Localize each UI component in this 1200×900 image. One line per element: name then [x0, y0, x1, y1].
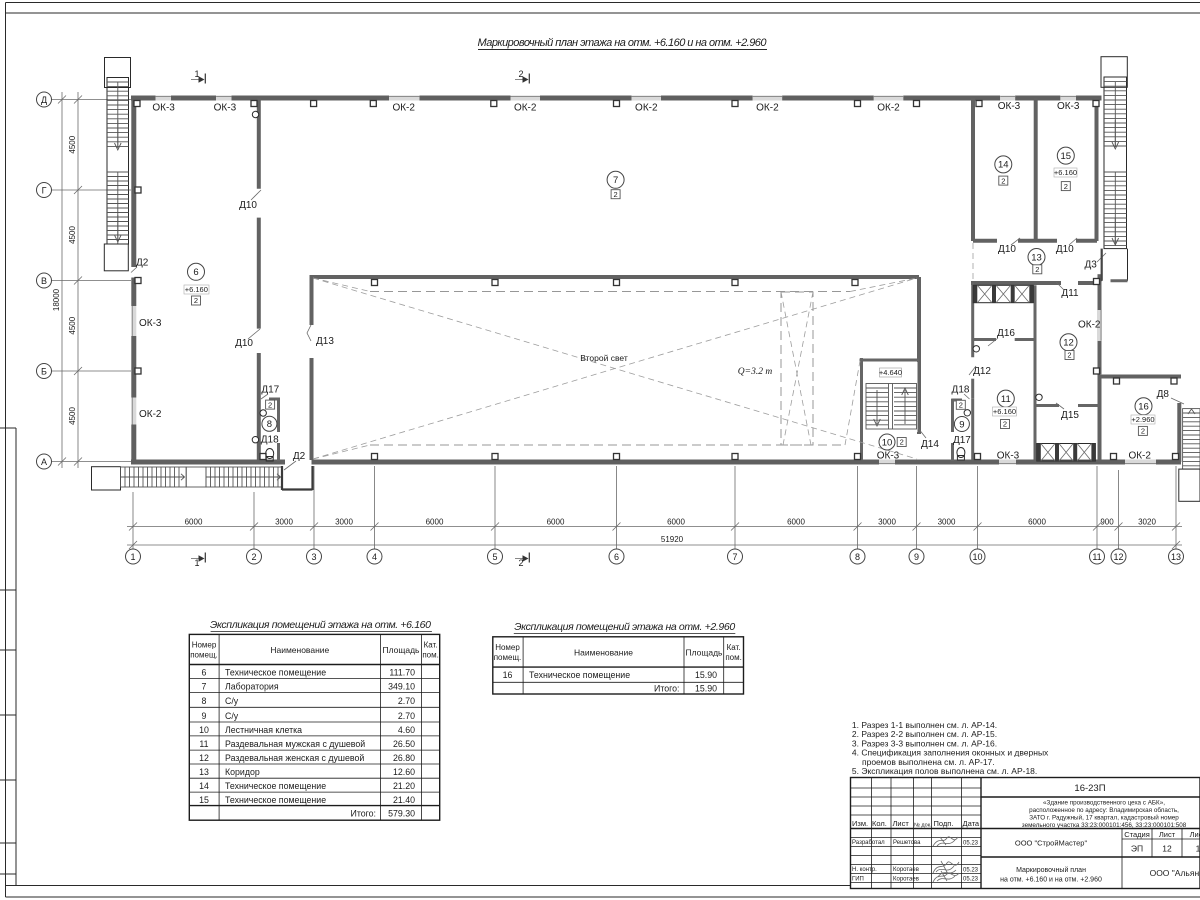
svg-text:4500: 4500	[68, 135, 77, 153]
svg-text:7: 7	[732, 552, 737, 562]
svg-text:Д13: Д13	[316, 336, 334, 347]
svg-text:Лаборатория: Лаборатория	[225, 682, 279, 692]
svg-text:ОК-2: ОК-2	[756, 103, 779, 114]
svg-text:111.70: 111.70	[389, 668, 415, 678]
svg-text:5. Экспликация полов выполнена: 5. Экспликация полов выполнена см. л. АР…	[852, 766, 1037, 776]
svg-text:05.23: 05.23	[963, 868, 979, 874]
svg-text:Разработал: Разработал	[852, 840, 885, 846]
svg-text:6000: 6000	[1028, 518, 1046, 527]
svg-text:Техническое помещение: Техническое помещение	[225, 795, 326, 805]
svg-text:+6.160: +6.160	[1054, 168, 1077, 177]
svg-text:2: 2	[959, 401, 963, 410]
svg-text:на отм. +6.160 и на отм. +2.96: на отм. +6.160 и на отм. +2.960	[1000, 877, 1102, 884]
svg-text:ОК-2: ОК-2	[139, 409, 162, 420]
svg-text:+6.160: +6.160	[185, 285, 208, 294]
svg-text:+4.640: +4.640	[879, 368, 902, 377]
svg-text:12: 12	[1162, 844, 1172, 854]
svg-text:Кат.: Кат.	[727, 643, 741, 652]
svg-text:ОК-3: ОК-3	[1057, 101, 1080, 112]
svg-text:2: 2	[1001, 176, 1005, 185]
svg-text:Техническое помещение: Техническое помещение	[225, 668, 326, 678]
svg-text:Н. контр.: Н. контр.	[852, 867, 877, 873]
svg-text:Д10: Д10	[998, 244, 1016, 255]
svg-text:ОК-3: ОК-3	[877, 451, 900, 462]
svg-text:пом.: пом.	[422, 651, 439, 660]
svg-text:С/у: С/у	[225, 711, 239, 721]
svg-text:16: 16	[1138, 402, 1149, 413]
svg-text:6000: 6000	[787, 518, 805, 527]
svg-text:ОК-2: ОК-2	[514, 103, 537, 114]
svg-text:2: 2	[251, 552, 256, 562]
svg-text:Д3: Д3	[1085, 260, 1098, 271]
svg-text:Изм.: Изм.	[852, 819, 868, 828]
svg-text:помещ.: помещ.	[190, 651, 218, 660]
svg-text:ЗАТО г. Радужный, 17 квартал,: ЗАТО г. Радужный, 17 квартал, кадастровы…	[1029, 814, 1179, 822]
svg-text:26.80: 26.80	[393, 753, 415, 763]
svg-text:3000: 3000	[335, 518, 353, 527]
svg-text:4500: 4500	[68, 226, 77, 244]
svg-text:14: 14	[998, 160, 1009, 171]
svg-text:1: 1	[130, 552, 135, 562]
svg-text:2.70: 2.70	[398, 711, 415, 721]
svg-text:Q=3.2 m: Q=3.2 m	[738, 367, 773, 377]
svg-text:ОК-2: ОК-2	[1128, 451, 1151, 462]
svg-text:2: 2	[1003, 420, 1007, 429]
svg-text:+2.960: +2.960	[1131, 415, 1154, 424]
svg-text:51920: 51920	[661, 535, 684, 544]
svg-text:2.70: 2.70	[398, 696, 415, 706]
svg-text:Раздевальная мужская с душевой: Раздевальная мужская с душевой	[225, 739, 365, 749]
svg-text:14: 14	[199, 781, 209, 791]
svg-text:8: 8	[202, 696, 207, 706]
svg-text:Б: Б	[41, 366, 47, 376]
svg-text:11: 11	[199, 739, 208, 749]
svg-text:Г: Г	[42, 185, 47, 195]
svg-text:Экспликация помещений этажа на: Экспликация помещений этажа на отм. +6.1…	[210, 619, 431, 631]
svg-text:349.10: 349.10	[388, 682, 415, 692]
svg-text:9: 9	[959, 419, 964, 430]
svg-text:Лист: Лист	[893, 819, 910, 828]
svg-text:10: 10	[882, 437, 893, 448]
svg-text:Техническое помещение: Техническое помещение	[529, 670, 630, 680]
svg-text:9: 9	[202, 711, 207, 721]
svg-text:Д16: Д16	[997, 328, 1015, 339]
svg-text:Кол.: Кол.	[872, 819, 887, 828]
svg-text:Второй свет: Второй свет	[580, 353, 628, 363]
svg-text:3000: 3000	[275, 518, 293, 527]
svg-text:8: 8	[855, 552, 860, 562]
svg-text:№ док.: № док.	[914, 823, 932, 829]
svg-text:ОК-3: ОК-3	[139, 318, 162, 329]
svg-text:«Здание производственного цеха: «Здание производственного цеха с АБК»,	[1043, 800, 1165, 807]
svg-text:Стадия: Стадия	[1124, 830, 1150, 839]
svg-text:Д2: Д2	[293, 451, 306, 462]
svg-text:помещ.: помещ.	[494, 653, 522, 662]
svg-text:Д17: Д17	[261, 384, 279, 395]
svg-text:26.50: 26.50	[393, 739, 415, 749]
svg-text:Лис: Лис	[1190, 830, 1200, 839]
svg-text:Д10: Д10	[235, 338, 253, 349]
svg-text:6: 6	[202, 668, 207, 678]
svg-text:2: 2	[1035, 265, 1039, 274]
svg-text:15: 15	[1061, 151, 1072, 162]
svg-text:15.90: 15.90	[695, 684, 717, 694]
svg-text:Д15: Д15	[1061, 410, 1079, 421]
svg-text:13: 13	[1031, 252, 1042, 263]
svg-text:Д10: Д10	[239, 200, 257, 211]
svg-text:12: 12	[1063, 338, 1074, 349]
svg-text:Д: Д	[41, 95, 47, 105]
svg-text:9: 9	[914, 552, 919, 562]
svg-text:Наименование: Наименование	[270, 645, 329, 655]
svg-text:ОК-3: ОК-3	[152, 103, 175, 114]
svg-text:Кат.: Кат.	[424, 641, 438, 650]
svg-text:13: 13	[1171, 552, 1181, 562]
svg-text:Д2: Д2	[136, 258, 149, 269]
svg-text:2: 2	[268, 400, 272, 409]
svg-text:12: 12	[1113, 552, 1123, 562]
svg-text:Д8: Д8	[1157, 389, 1170, 400]
svg-text:Номер: Номер	[495, 643, 520, 652]
svg-text:4: 4	[372, 552, 377, 562]
svg-text:5: 5	[492, 552, 497, 562]
svg-text:С/у: С/у	[225, 696, 239, 706]
svg-text:Итого:: Итого:	[654, 684, 680, 694]
svg-text:ОК-3: ОК-3	[998, 101, 1021, 112]
svg-text:Д18: Д18	[952, 384, 970, 395]
svg-text:расположенное по адресу: Влади: расположенное по адресу: Владимирская об…	[1029, 806, 1179, 814]
svg-text:Маркировочный план: Маркировочный план	[1016, 866, 1086, 874]
svg-text:2: 2	[1064, 182, 1068, 191]
svg-text:Площадь: Площадь	[685, 648, 723, 658]
svg-text:6: 6	[614, 552, 619, 562]
svg-text:Д12: Д12	[973, 366, 991, 377]
svg-text:7: 7	[202, 682, 207, 692]
svg-text:18000: 18000	[52, 288, 61, 311]
svg-text:4500: 4500	[68, 407, 77, 425]
svg-text:Д10: Д10	[1056, 244, 1074, 255]
svg-text:пом.: пом.	[725, 653, 742, 662]
svg-text:2: 2	[1141, 427, 1145, 436]
svg-text:Д14: Д14	[921, 439, 939, 450]
svg-text:11: 11	[1001, 394, 1011, 405]
svg-text:Лист: Лист	[1159, 830, 1176, 839]
svg-text:ОК-3: ОК-3	[997, 451, 1020, 462]
svg-text:ГИП: ГИП	[852, 877, 864, 883]
svg-text:21.20: 21.20	[393, 781, 415, 791]
svg-text:Коротаев: Коротаев	[893, 877, 919, 883]
svg-text:ООО "СтройМастер": ООО "СтройМастер"	[1015, 839, 1088, 848]
svg-text:Техническое помещение: Техническое помещение	[225, 781, 326, 791]
svg-text:ОК-2: ОК-2	[392, 103, 415, 114]
svg-text:15: 15	[199, 795, 209, 805]
svg-text:05.23: 05.23	[963, 841, 979, 847]
svg-text:2: 2	[194, 296, 198, 305]
svg-text:8: 8	[267, 419, 272, 430]
svg-text:ОК-3: ОК-3	[214, 103, 237, 114]
svg-text:Лестничная клетка: Лестничная клетка	[225, 725, 302, 735]
svg-text:4500: 4500	[68, 316, 77, 334]
svg-text:21.40: 21.40	[393, 795, 415, 805]
svg-text:4.60: 4.60	[398, 725, 415, 735]
svg-text:3: 3	[311, 552, 316, 562]
svg-text:3020: 3020	[1138, 518, 1156, 527]
svg-text:Коридор: Коридор	[225, 767, 260, 777]
svg-text:16-23П: 16-23П	[1074, 783, 1105, 794]
svg-text:Экспликация помещений этажа на: Экспликация помещений этажа на отм. +2.9…	[514, 621, 735, 633]
svg-text:6000: 6000	[185, 518, 203, 527]
svg-text:3000: 3000	[878, 518, 896, 527]
svg-text:10: 10	[199, 725, 209, 735]
svg-text:Раздевальная женская с душевой: Раздевальная женская с душевой	[225, 753, 364, 763]
svg-text:земельного участка 33:23:00010: земельного участка 33:23:000101:456, 33:…	[1022, 822, 1187, 829]
svg-text:05.23: 05.23	[963, 877, 979, 883]
svg-text:12: 12	[199, 753, 209, 763]
svg-text:Решетова: Решетова	[893, 840, 921, 846]
svg-text:2: 2	[614, 190, 618, 199]
svg-text:+6.160: +6.160	[993, 407, 1016, 416]
svg-text:6000: 6000	[667, 518, 685, 527]
svg-text:Подп.: Подп.	[934, 819, 954, 828]
svg-text:1: 1	[1196, 844, 1200, 854]
svg-text:Маркировочный план этажа на от: Маркировочный план этажа на отм. +6.160 …	[478, 37, 768, 49]
svg-text:Номер: Номер	[192, 641, 217, 650]
svg-text:2: 2	[1067, 351, 1071, 360]
svg-text:11: 11	[1092, 552, 1101, 562]
svg-text:3000: 3000	[938, 518, 956, 527]
svg-text:2: 2	[900, 438, 904, 447]
svg-text:Дата: Дата	[963, 819, 980, 828]
svg-text:ЭП: ЭП	[1131, 844, 1143, 854]
svg-text:ОК-2: ОК-2	[1078, 320, 1101, 331]
svg-text:Д17: Д17	[953, 435, 971, 446]
svg-text:16: 16	[503, 670, 513, 680]
svg-text:12.60: 12.60	[393, 767, 415, 777]
svg-text:6: 6	[193, 267, 198, 278]
svg-text:Наименование: Наименование	[574, 648, 633, 658]
svg-text:ООО "Альянс": ООО "Альянс"	[1150, 868, 1200, 878]
svg-text:Коротаев: Коротаев	[893, 867, 919, 873]
svg-text:А: А	[41, 457, 47, 467]
svg-text:579.30: 579.30	[388, 809, 415, 819]
svg-text:10: 10	[972, 552, 982, 562]
svg-text:Д18: Д18	[261, 435, 279, 446]
svg-text:Площадь: Площадь	[382, 645, 420, 655]
svg-text:ОК-2: ОК-2	[877, 103, 900, 114]
svg-text:Итого:: Итого:	[351, 809, 377, 819]
svg-text:ОК-2: ОК-2	[635, 103, 658, 114]
svg-text:7: 7	[613, 175, 618, 186]
svg-text:900: 900	[1100, 518, 1114, 527]
svg-text:13: 13	[199, 767, 209, 777]
svg-text:6000: 6000	[547, 518, 565, 527]
svg-text:6000: 6000	[426, 518, 444, 527]
svg-text:15.90: 15.90	[695, 670, 717, 680]
svg-text:В: В	[41, 276, 47, 286]
